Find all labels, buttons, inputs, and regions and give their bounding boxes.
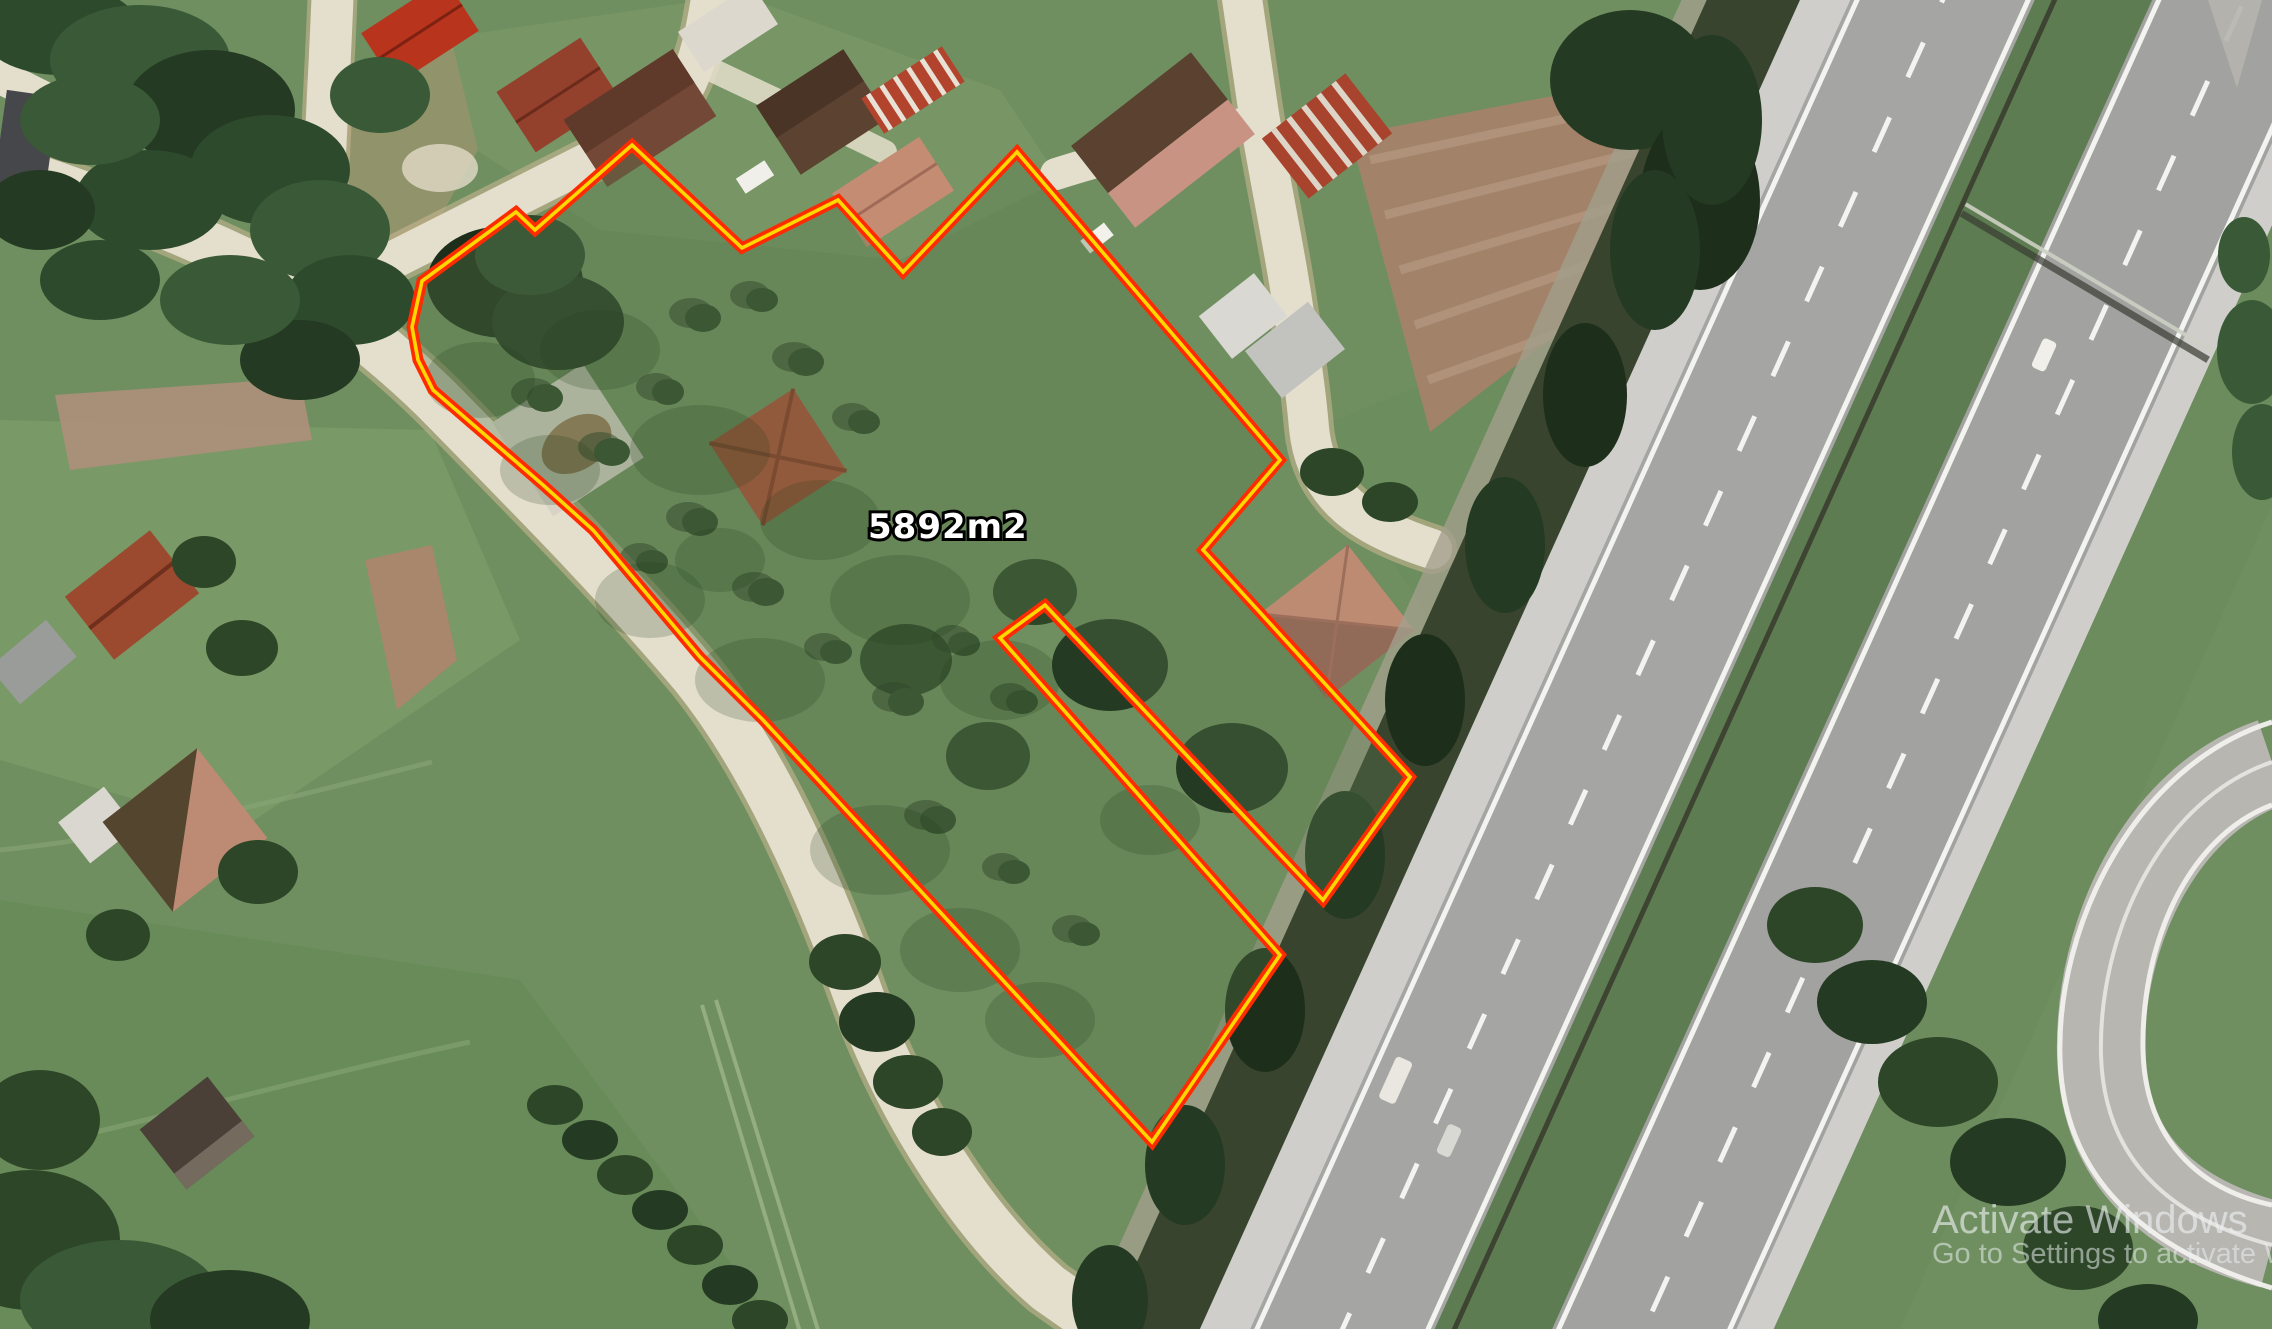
windows-activation-watermark: Activate Windows Go to Settings to activ… xyxy=(1932,1198,2272,1270)
watermark-line2: Go to Settings to activate Windows. xyxy=(1932,1238,2272,1270)
watermark-line1: Activate Windows xyxy=(1932,1198,2248,1242)
parcel-area-label: 5892m2 xyxy=(868,507,1028,547)
map-canvas[interactable]: 5892m2 Activate Windows Go to Settings t… xyxy=(0,0,2272,1329)
